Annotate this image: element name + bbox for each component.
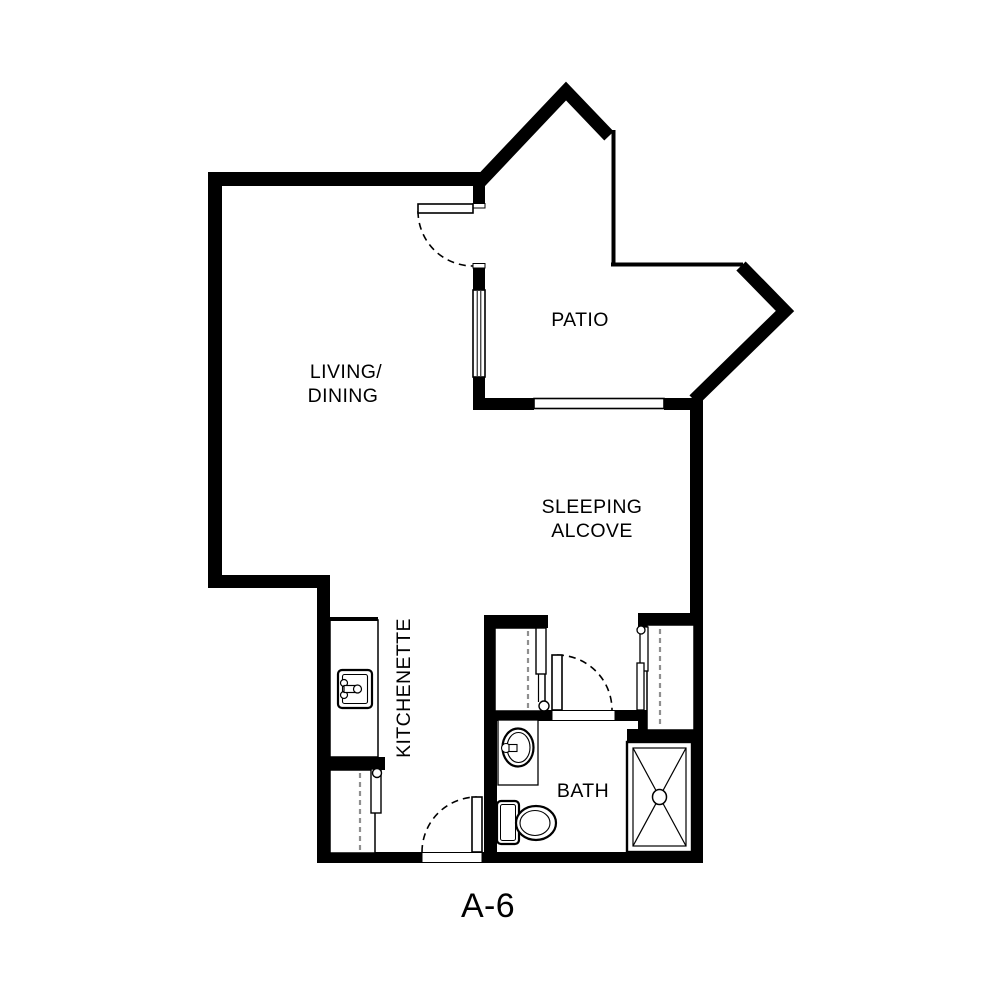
kitchenette-label: KITCHENETTE [393, 618, 415, 758]
kitchen-closet-knob [373, 769, 382, 778]
patio-label: PATIO [551, 309, 609, 331]
windows [473, 290, 664, 409]
shower-drain [653, 790, 667, 805]
entry-door-leaf [472, 797, 482, 852]
patio-door-swing-arc [418, 211, 473, 266]
hall-closet-right [647, 625, 694, 730]
wall-top [208, 172, 483, 186]
living-dining-label-line2: DINING [308, 385, 379, 407]
wall-patio-peak-diagonal [478, 91, 609, 184]
wall-kitchen-stub [317, 757, 385, 770]
wall-bottom-right [482, 852, 703, 863]
kitchen-counter-top-edge [330, 617, 378, 621]
wall-kitchen-left [317, 575, 330, 862]
entry-door-threshold [422, 853, 482, 863]
patio-door-leaf [418, 204, 473, 213]
wall-bath-top-right [615, 710, 650, 721]
kitchenette-fixtures [330, 617, 378, 757]
unit-label: A-6 [461, 887, 515, 925]
patio-door-jamb-bottom [473, 264, 485, 269]
toilet-tank-inner [501, 805, 516, 841]
wall-patio-bottom-left [473, 398, 534, 410]
hall-closet-right-knob [637, 626, 645, 634]
wall-patio-point-diagonal [694, 266, 785, 400]
wall-patio-mid [473, 266, 485, 291]
bath-door-swing-arc [557, 655, 612, 710]
floor-plan: LIVING/ DINING PATIO SLEEPING ALCOVE KIT… [0, 0, 1000, 1000]
wall-left [208, 172, 222, 588]
hall-closet-right-door-panel-2 [637, 663, 644, 710]
wall-living-bottom [208, 575, 330, 588]
floor-plan-page: LIVING/ DINING PATIO SLEEPING ALCOVE KIT… [0, 0, 1000, 1000]
bath-faucet-spout [509, 745, 517, 752]
bath-door-leaf [552, 655, 562, 710]
hall-closet-left-knob [539, 701, 549, 711]
bath-label: BATH [557, 780, 609, 802]
entry-door-swing-arc [422, 797, 477, 852]
patio-window-side [473, 290, 485, 377]
sleeping-alcove-label-line2: ALCOVE [551, 520, 633, 542]
wall-shower-top [627, 729, 703, 742]
toilet-bowl-inner [520, 811, 550, 836]
sleeping-alcove-label-line1: SLEEPING [542, 496, 643, 518]
hall-closet-left-door-panel [536, 628, 546, 674]
living-dining-label-line1: LIVING/ [310, 361, 382, 383]
patio-window-bottom [534, 399, 664, 409]
patio-door-jamb-top [473, 204, 485, 209]
kitchen-closet [330, 770, 375, 853]
bath-door-threshold [552, 711, 615, 721]
kitchen-faucet-knob [354, 685, 362, 693]
